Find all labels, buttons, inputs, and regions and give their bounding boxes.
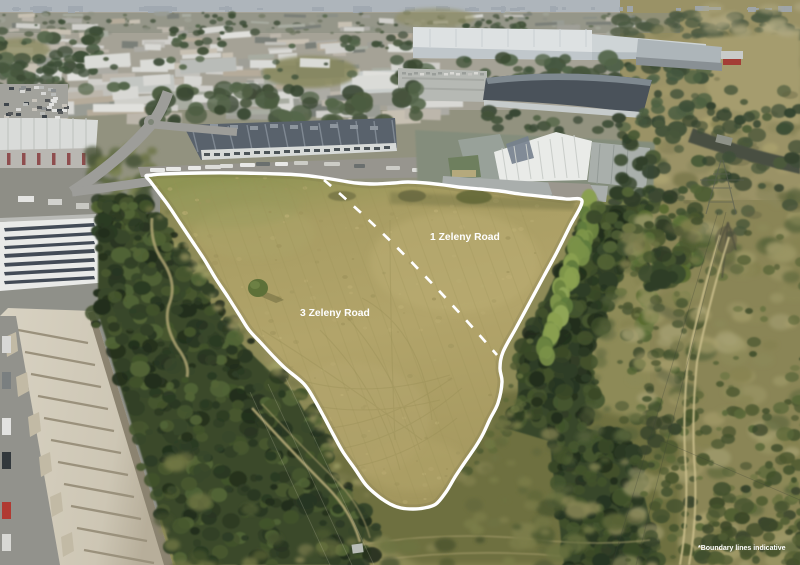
svg-text:1 Zeleny Road: 1 Zeleny Road <box>430 232 500 243</box>
svg-text:3 Zeleny Road: 3 Zeleny Road <box>300 308 370 319</box>
svg-text:*Boundary lines indicative: *Boundary lines indicative <box>698 545 786 552</box>
